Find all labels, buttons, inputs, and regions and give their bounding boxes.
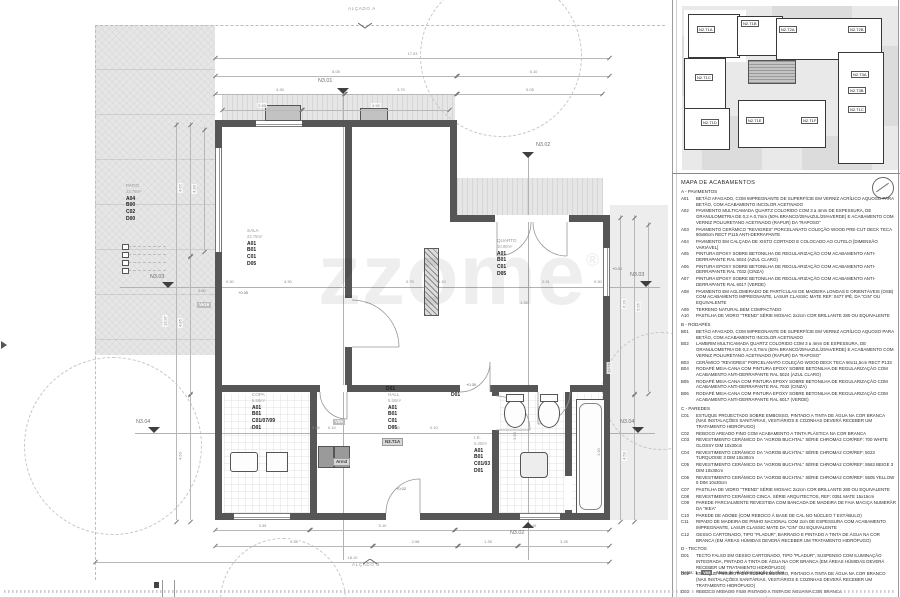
panel-divider — [672, 0, 673, 597]
finishes-item: A10PASTILHA DE VIDRO "TREND" SÉRIE MOSAI… — [681, 313, 896, 319]
kitchen-appliance — [266, 452, 288, 472]
finishes-item-text: RODAPÉ MEIA-CANA COM PINTURA EPOXY SOBRE… — [696, 391, 896, 402]
room-name: QUARTO — [497, 238, 517, 244]
room-finish-code: B01 — [252, 411, 275, 418]
finishes-item-id: C07 — [681, 487, 693, 493]
dimension-line: 3.70 — [345, 91, 457, 98]
dimension-line: 4.85 — [187, 254, 194, 392]
key-unit-label: N2.T2B — [848, 26, 866, 33]
dim-line — [215, 94, 345, 95]
finishes-item: B03CERÂMICO "REVIGRES" PORCELANATO COLEÇ… — [681, 360, 896, 366]
dim-line — [457, 94, 603, 95]
section-marker-triangle — [337, 88, 349, 94]
dimension-line: 5.10 — [310, 527, 455, 534]
finishes-item-id: A07 — [681, 276, 693, 287]
finishes-item-id: C03 — [681, 437, 693, 448]
room-finish-code: B01 — [388, 411, 401, 418]
finishes-item: A08PAVIMENTO EM AGLOMERADO DE PARTÍCULAS… — [681, 289, 896, 306]
section-marker-label: N3.02 — [536, 142, 550, 148]
dim-line — [345, 94, 457, 95]
inline-dimension: 1.65 — [392, 425, 400, 430]
finishes-item: C12GESSO CARTONADO, TIPO "PLADUR", BARRA… — [681, 532, 896, 543]
bathtub-inner — [579, 403, 602, 510]
finishes-item-text: REVESTIMENTO CERÂMICO DA "AGROB BUCHTAL"… — [696, 437, 896, 448]
inline-dimension: 2.10 — [250, 425, 258, 430]
finishes-item-text: GESSO CARTONADO, TIPO "PLADUR", BARRADO … — [696, 532, 896, 543]
dimension-line: 5.45 — [455, 527, 610, 534]
finishes-item: B04RODAPÉ MEIA-CANA COM PINTURA EPOXY SO… — [681, 366, 896, 377]
dimension-line: 4.30 — [215, 91, 345, 98]
finishes-section: A - PAVIMENTOSA01BETÃO AFAGADO, COM IMPR… — [681, 189, 896, 319]
keyplan-separator — [672, 173, 900, 174]
finishes-item-text: PAVIMENTO CERÂMICO "REVIGRES" PORCELANAT… — [696, 227, 896, 238]
dim-line — [518, 546, 610, 547]
finishes-item-id: C02 — [681, 431, 693, 437]
dim-value: 4.50 — [178, 451, 183, 461]
dim-line — [190, 254, 191, 392]
finishes-item-id: B04 — [681, 366, 693, 377]
dimension-line: 1.35 — [458, 543, 518, 550]
finishes-item-id: B02 — [681, 341, 693, 358]
dim-line — [222, 110, 302, 111]
finishes-item-text: PAREDE DE ADOBE (COM REBOCO À BASE DE CA… — [696, 513, 862, 519]
key-unit-label: N2.T1D — [701, 119, 719, 126]
dim-value: 5.55 — [289, 539, 299, 544]
finishes-item: A02PAVIMENTO MULTICAMADA QUARTZ COLORIDO… — [681, 208, 896, 225]
finishes-item-text: PINTURA EPOXY SOBRE BETONILHA DE REGULAR… — [696, 276, 896, 287]
room-area: 22.75m² — [247, 234, 262, 239]
finishes-item: A05PINTURA EPOXY SOBRE BETONILHA DE REGU… — [681, 251, 896, 262]
finishes-item: A01BETÃO AFAGADO, COM IMPREGNANTE DE SUP… — [681, 196, 896, 207]
watermark-registered-mark: ® — [586, 250, 600, 270]
dimension-line: 5.05 — [457, 91, 603, 98]
dim-line — [215, 76, 457, 77]
inline-dimension: 0.10 — [430, 425, 438, 430]
dim-value: 2.98 — [411, 539, 421, 544]
finishes-item-text: BETÃO AFAGADO, COM IMPREGNANTE DE SUPERF… — [696, 196, 896, 207]
bidet-base — [540, 394, 558, 402]
kitchen-sink — [230, 452, 258, 472]
washbasin — [520, 452, 548, 478]
finishes-item-text: REVESTIMENTO CERÂMICO DA "AGROB BUCHTAL"… — [696, 462, 896, 473]
inline-dimension: 0.10 — [328, 425, 336, 430]
dimension-line: 17.03 — [215, 55, 610, 62]
dim-value: 4.30 — [275, 87, 285, 92]
section-marker-triangle — [162, 282, 174, 288]
finishes-item-id: A09 — [681, 307, 693, 313]
notes-tag: V09 — [701, 570, 712, 575]
finishes-item: C11RIPADO DE MADEIRA DE PINHO NACIONAL C… — [681, 519, 896, 530]
finishes-item-id: C01 — [681, 413, 693, 430]
room-finish-code: A01 — [388, 405, 401, 412]
section-marker-label: N3.02 — [510, 530, 524, 536]
room-area: 22.78m² — [126, 189, 141, 194]
toilet-cistern — [506, 394, 524, 402]
key-unit-label: N2.T2A — [779, 26, 797, 33]
laundry-unit — [318, 446, 334, 468]
chevron-up-icon — [363, 552, 377, 558]
finishes-item-text: PASTILHA DE VIDRO "TREND" SÉRIE MOSAIC 2… — [696, 313, 890, 319]
section-marker-label: N3.04 — [136, 419, 150, 425]
chevron-down-icon — [358, 16, 372, 22]
room-area: 10.90m² — [497, 244, 517, 249]
finishes-section-header: D - TECTOS — [681, 546, 896, 551]
dim-line — [302, 110, 450, 111]
dim-line — [620, 215, 621, 520]
room-finish-code: B00 — [126, 202, 141, 209]
door-tag: D01 — [386, 386, 395, 392]
finishes-item-text: PAVIMENTO EM CALÇADA DE XISTO CORTADO E … — [696, 239, 896, 250]
finishes-item-text: PAVIMENTO MULTICAMADA QUARTZ COLORIDO CO… — [696, 208, 896, 225]
finishes-item-text: RODAPÉ MEIA-CANA COM PINTURA EPOXY SOBRE… — [696, 379, 896, 390]
inline-dimension: 0.75 — [406, 279, 414, 284]
finishes-item: B01BETÃO AFAGADO, COM IMPREGNANTE DE SUP… — [681, 329, 896, 340]
dim-value: 18.10 — [346, 555, 358, 560]
dim-line — [204, 127, 205, 250]
dim-value: 17.03 — [406, 51, 418, 56]
finishes-item-id: C04 — [681, 450, 693, 461]
finishes-item-text: ESTUQUE PROJECTADO SOBRE EMBOSSO, PINTAD… — [696, 413, 896, 430]
finishes-item-text: PAREDE PARCIALMENTE REVESTIDA COM BANCAD… — [696, 500, 896, 511]
room-finish-code: C01 — [497, 264, 517, 271]
key-unit-label: N2.T1C — [848, 106, 866, 113]
finishes-item-id: A04 — [681, 239, 693, 250]
finishes-item-id: C11 — [681, 519, 693, 530]
finishes-item-text: RODAPÉ MEIA-CANA COM PINTURA EPOXY SOBRE… — [696, 366, 896, 377]
elevation-marker-label: ALÇADO A — [348, 6, 376, 11]
dim-value: 5.10 — [378, 523, 388, 528]
panel-title: MAPA DE ACABAMENTOS — [681, 180, 896, 186]
finishes-item: A04PAVIMENTO EM CALÇADA DE XISTO CORTADO… — [681, 239, 896, 250]
dim-line — [215, 546, 373, 547]
inline-dimension: 0.65 — [312, 425, 320, 430]
inline-dimension: 4.30 — [284, 279, 292, 284]
finishes-item: B02LAMBRIM MULTICAMADA QUARTZ COLORIDO C… — [681, 341, 896, 358]
dimension-line: 3.35 — [215, 527, 310, 534]
finishes-item-id: B06 — [681, 391, 693, 402]
finishes-item-text: PINTURA EPOXY SOBRE BETONILHA DE REGULAR… — [696, 264, 896, 275]
section-marker-triangle — [148, 427, 160, 433]
dimension-line: 5.55 — [215, 543, 373, 550]
finishes-item-id: B05 — [681, 379, 693, 390]
drawing-sheet: zzome® PATIO22.78m²A04B00C02D00SALA22.75… — [0, 0, 900, 597]
key-unit-label: N2.T3B — [848, 87, 866, 94]
dim-value: 6.20 — [622, 299, 627, 309]
finishes-item-id: B01 — [681, 329, 693, 340]
door-tag: D01 — [451, 392, 460, 398]
finishes-item-text: BETÃO AFAGADO, COM IMPREGNANTE DE SUPERF… — [696, 329, 896, 340]
dimension-line: 2.65 — [222, 107, 302, 114]
inline-dimension: 1.50 — [512, 432, 517, 440]
inline-dimension: 0.80 — [198, 288, 206, 293]
room-finish-code: C01/07/09 — [252, 418, 275, 425]
dim-value: 4.50 — [622, 451, 627, 461]
room-area: 5.30m² — [474, 441, 490, 446]
footer-line — [174, 580, 175, 597]
panel-notes: Notas: 1 - V09 - Mapa de vãos/designação… — [681, 570, 896, 576]
room-finish-code: A01 — [247, 241, 262, 248]
finishes-item: C09PAREDE PARCIALMENTE REVESTIDA COM BAN… — [681, 500, 896, 511]
dim-value: 1.35 — [483, 539, 493, 544]
dimension-line: 4.30 — [201, 127, 208, 250]
notes-prefix: 1 - — [695, 570, 700, 575]
finishes-item: A03PAVIMENTO CERÂMICO "REVIGRES" PORCELA… — [681, 227, 896, 238]
finishes-item: A09TERRENO NATURAL BEM COMPACTADO — [681, 307, 896, 313]
finishes-item: C08REVESTIMENTO CERÂMICO CINCA, SÉRIE AR… — [681, 494, 896, 500]
finishes-item: D01TECTO FALSO EM GESSO CARTONADO, TIPO … — [681, 553, 896, 570]
key-pool — [748, 60, 796, 84]
finishes-item: B05RODAPÉ MEIA-CANA COM PINTURA EPOXY SO… — [681, 379, 896, 390]
toilet — [504, 400, 526, 428]
finishes-section: C - PAREDESC01ESTUQUE PROJECTADO SOBRE E… — [681, 406, 896, 544]
finishes-item: B06RODAPÉ MEIA-CANA COM PINTURA EPOXY SO… — [681, 391, 896, 402]
dim-value: 4.62 — [178, 183, 183, 193]
room-finish-code: C01 — [388, 418, 401, 425]
floor-plan: zzome® PATIO22.78m²A04B00C02D00SALA22.75… — [0, 0, 672, 597]
dim-value: 3.35 — [258, 523, 268, 528]
notes-text: - Mapa de vãos/designação de vãos — [714, 570, 785, 575]
room-finish-code: C02 — [126, 209, 141, 216]
plan-tag: Arm3 — [333, 458, 350, 466]
room-finish-code: A01 — [252, 405, 275, 412]
section-marker-label: N3.01 — [318, 78, 332, 84]
dim-line — [215, 58, 610, 59]
finishes-item: C07PASTILHA DE VIDRO "TREND" SÉRIE MOSAI… — [681, 487, 896, 493]
plan-tag: N3.T1A — [382, 438, 403, 446]
room-finish-code: D05 — [247, 261, 262, 268]
dim-value: 2.65 — [257, 103, 267, 108]
inline-dimension: 0.30 — [594, 279, 602, 284]
panel-divider-inner — [676, 0, 677, 597]
finishes-item-id: A06 — [681, 264, 693, 275]
finishes-item: A06PINTURA EPOXY SOBRE BETONILHA DE REGU… — [681, 264, 896, 275]
spot-elevation: +0.02 — [396, 486, 406, 491]
dim-value: 5.05 — [525, 87, 535, 92]
dim-value: 4.90 — [371, 103, 381, 108]
room-name: PATIO — [126, 183, 141, 189]
dim-line — [373, 546, 458, 547]
room-finish-code: B01 — [247, 247, 262, 254]
dim-value: 3.25 — [559, 539, 569, 544]
section-marker-label: N3.03 — [630, 272, 644, 278]
room-finish-code: A01 — [497, 251, 517, 258]
dim-line — [455, 530, 610, 531]
dim-line — [190, 392, 191, 520]
key-building — [684, 108, 730, 150]
key-building — [688, 14, 740, 58]
finishes-item: A07PINTURA EPOXY SOBRE BETONILHA DE REGU… — [681, 276, 896, 287]
finishes-item-text: TECTO FALSO EM GESSO CARTONADO, TIPO "PL… — [696, 553, 896, 570]
section-marker-label: N3.04 — [620, 419, 634, 425]
section-marker-triangle — [632, 427, 644, 433]
dim-line — [634, 392, 635, 520]
finishes-section: B - RODAPÉSB01BETÃO AFAGADO, COM IMPREGN… — [681, 322, 896, 402]
finishes-section-header: B - RODAPÉS — [681, 322, 896, 327]
finishes-item-id: A03 — [681, 227, 693, 238]
finishes-item-id: C06 — [681, 475, 693, 486]
finishes-item: C05REVESTIMENTO CERÂMICO DA "AGROB BUCHT… — [681, 462, 896, 473]
dim-value: 8.05 — [331, 69, 341, 74]
dimension-line: 2.98 — [373, 543, 458, 550]
section-marker-triangle — [522, 152, 534, 158]
spot-elevation: +0.30 — [238, 290, 248, 295]
room-label: QUARTO10.90m²A01B01C01D05 — [497, 238, 517, 277]
dimension-line: 10.70 — [617, 215, 624, 520]
finishes-item-id: C05 — [681, 462, 693, 473]
inline-dimension: 1.90 — [596, 448, 601, 456]
notes-label: Notas: — [681, 570, 694, 575]
site-key-plan: N2.T1AN2.T1BN2.T2AN2.T2BN2.T1CN2.T1DN2.T… — [682, 6, 898, 170]
dim-line — [458, 546, 518, 547]
finishes-item-id: A10 — [681, 313, 693, 319]
key-unit-label: N2.T1F — [801, 117, 818, 124]
dimension-line: 8.05 — [215, 73, 457, 80]
finishes-item-text: REBOCO AREADO FINO COM ACABAMENTO A TINT… — [696, 431, 866, 437]
section-marker-triangle — [522, 522, 534, 528]
plan-tag: Ve16 — [197, 302, 211, 308]
finishes-section-header: C - PAREDES — [681, 406, 896, 411]
finishes-item-id: B03 — [681, 360, 693, 366]
finishes-item-id: C12 — [681, 532, 693, 543]
finishes-item: C06REVESTIMENTO CERÂMICO DA "AGROB BUCHT… — [681, 475, 896, 486]
key-unit-label: N2.T1C — [695, 74, 713, 81]
key-unit-label: N2.T1B — [741, 20, 759, 27]
sheet-footer-text — [4, 590, 896, 593]
room-label: SALA22.75m²A01B01C01D05 — [247, 228, 262, 267]
inline-dimension: 1.10 — [438, 279, 446, 284]
dim-value: 3.70 — [396, 87, 406, 92]
room-label: PATIO22.78m²A04B00C02D00 — [126, 183, 141, 222]
finishes-item-text: RIPADO DE MADEIRA DE PINHO NACIONAL COM … — [696, 519, 896, 530]
key-building — [738, 100, 826, 148]
finishes-item-text: TERRENO NATURAL BEM COMPACTADO — [696, 307, 781, 313]
dim-value: 10.70 — [606, 361, 611, 373]
finishes-item-text: PAVIMENTO EM AGLOMERADO DE PARTÍCULAS DE… — [696, 289, 896, 306]
room-finish-code: A04 — [126, 196, 141, 203]
dimension-line: 5.10 — [457, 73, 610, 80]
finishes-item-text: REVESTIMENTO CERÂMICO DA "AGROB BUCHTAL"… — [696, 475, 896, 486]
finishes-item-text: CERÂMICO "REVIGRES" PORCELANATO COLEÇÃO … — [696, 360, 892, 366]
finishes-item-text: PASTILHA DE VIDRO "TREND" SÉRIE MOSAIC 2… — [696, 487, 890, 493]
dimension-line: 4.90 — [302, 107, 450, 114]
room-area: 6.50m² — [252, 398, 275, 403]
room-finish-code: B01 — [474, 454, 490, 461]
dim-value: 5.65 — [636, 302, 641, 312]
dim-value: 4.30 — [192, 184, 197, 194]
key-unit-label: N2.T1A — [697, 26, 715, 33]
room-finish-code: D05 — [497, 271, 517, 278]
north-pointer-icon — [1, 341, 7, 349]
footer-mark — [154, 582, 159, 588]
watermark: zzome® — [318, 232, 600, 318]
key-unit-label: N2.T3A — [851, 71, 869, 78]
dim-line — [457, 76, 610, 77]
dimension-line: 5.65 — [645, 222, 652, 392]
room-label: I.S.5.30m²A01B01C01/03D01 — [474, 435, 490, 474]
finishes-item-id: A01 — [681, 196, 693, 207]
finishes-item: C04REVESTIMENTO CERÂMICO DA "AGROB BUCHT… — [681, 450, 896, 461]
finishes-item-id: A02 — [681, 208, 693, 225]
finishes-item: C10PAREDE DE ADOBE (COM REBOCO À BASE DE… — [681, 513, 896, 519]
finishes-item-id: C08 — [681, 494, 693, 500]
inline-dimension: 0.30 — [226, 279, 234, 284]
finishes-panel: MAPA DE ACABAMENTOS A - PAVIMENTOSA01BET… — [681, 180, 896, 592]
sheet-right-border — [898, 0, 899, 597]
finishes-item: C03REVESTIMENTO CERÂMICO DA "AGROB BUCHT… — [681, 437, 896, 448]
dim-value: 5.10 — [529, 69, 539, 74]
finishes-item: C01ESTUQUE PROJECTADO SOBRE EMBOSSO, PIN… — [681, 413, 896, 430]
section-marker-triangle — [640, 281, 652, 287]
dimension-line: 4.50 — [631, 392, 638, 520]
footer-line — [162, 580, 163, 597]
dim-line — [215, 530, 310, 531]
room-finish-code: D01 — [474, 468, 490, 475]
key-unit-label: N2.T1E — [746, 117, 764, 124]
dim-value: 4.85 — [178, 318, 183, 328]
inline-dimension: 2.91 — [542, 279, 550, 284]
room-finish-code: D00 — [126, 216, 141, 223]
finishes-section-header: A - PAVIMENTOS — [681, 189, 896, 194]
room-name: HALL — [388, 392, 401, 398]
room-finish-code: C01/03 — [474, 461, 490, 468]
dimension-line: 3.25 — [518, 543, 610, 550]
bidet — [538, 400, 560, 428]
dim-line — [648, 222, 649, 392]
room-finish-code: C01 — [247, 254, 262, 261]
finishes-item: C02REBOCO AREADO FINO COM ACABAMENTO A T… — [681, 431, 896, 437]
finishes-sections: A - PAVIMENTOSA01BETÃO AFAGADO, COM IMPR… — [681, 189, 896, 597]
finishes-item-text: PINTURA EPOXY SOBRE BETONILHA DE REGULAR… — [696, 251, 896, 262]
finishes-item-id: C09 — [681, 500, 693, 511]
finishes-item-id: D01 — [681, 553, 693, 570]
finishes-item-id: A08 — [681, 289, 693, 306]
room-finish-code: A01 — [474, 448, 490, 455]
room-area: 5.50m² — [388, 398, 401, 403]
section-marker-label: N3.03 — [150, 274, 164, 280]
finishes-item-id: A05 — [681, 251, 693, 262]
dim-line — [310, 530, 455, 531]
dimension-line: 4.50 — [187, 392, 194, 520]
dim-value: 13.97 — [162, 315, 167, 327]
finishes-item-text: LAMBRIM MULTICAMADA QUARTZ COLORIDO COM … — [696, 341, 896, 358]
finishes-item-text: REVESTIMENTO CERÂMICO CINCA, SÉRIE ARQUI… — [696, 494, 874, 500]
room-finish-code: B01 — [497, 257, 517, 264]
finishes-item-id: C10 — [681, 513, 693, 519]
inline-dimension: 1.35 — [520, 300, 528, 305]
spot-elevation: +0.30 — [466, 382, 476, 387]
finishes-item-text: REVESTIMENTO CERÂMICO DA "AGROB BUCHTAL"… — [696, 450, 896, 461]
